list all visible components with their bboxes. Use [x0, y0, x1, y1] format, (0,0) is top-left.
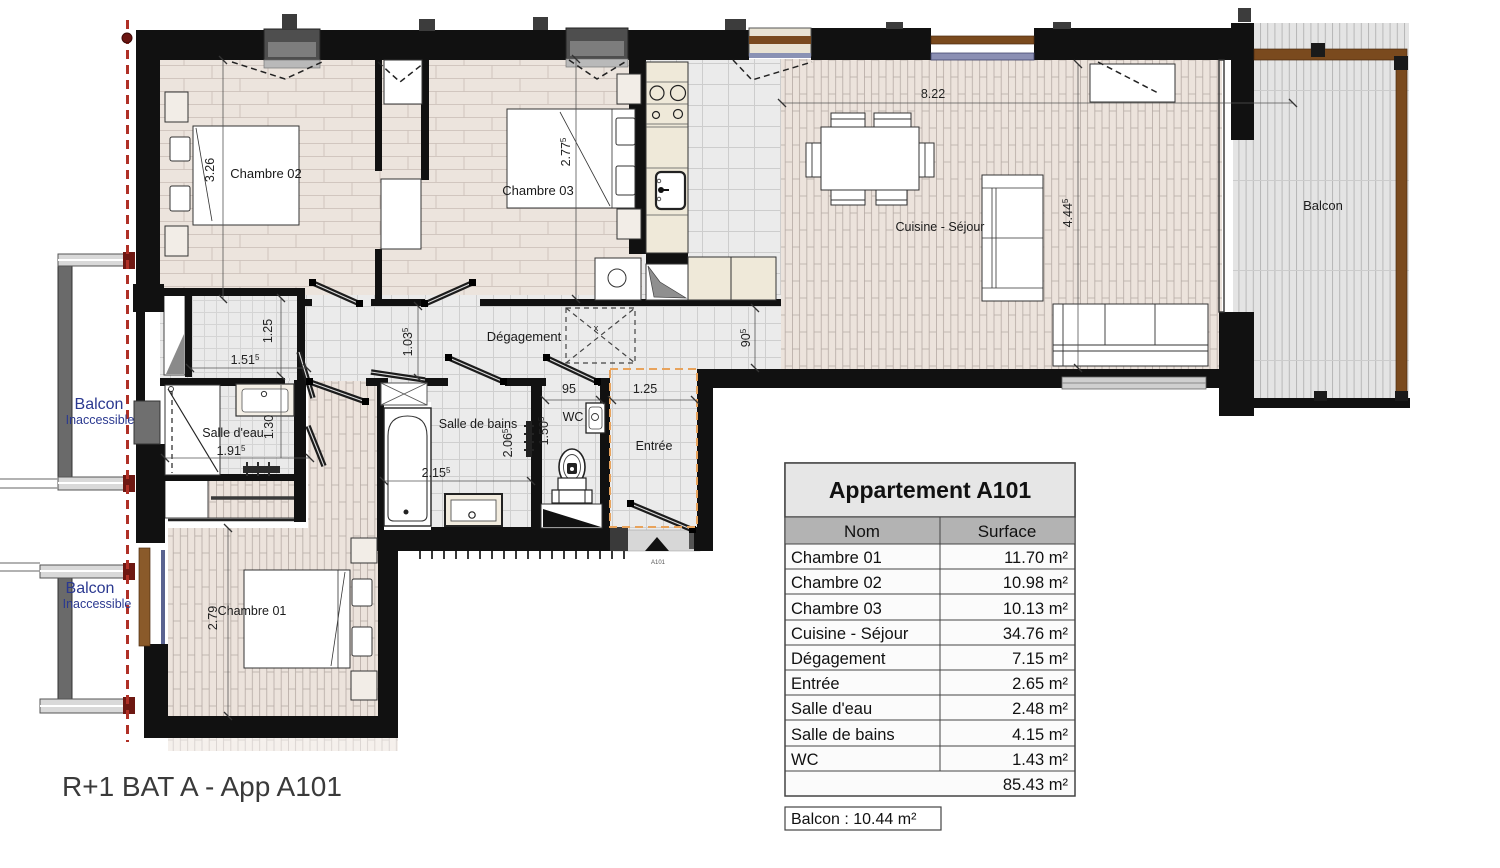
svg-text:Balcon: Balcon [1303, 198, 1343, 213]
svg-text:11.70 m²: 11.70 m² [1004, 549, 1068, 567]
svg-text:Chambre 01: Chambre 01 [791, 549, 882, 567]
svg-text:10.13 m²: 10.13 m² [1003, 600, 1069, 618]
svg-text:Chambre 02: Chambre 02 [791, 574, 882, 592]
svg-text:Salle de bains: Salle de bains [439, 417, 518, 431]
svg-text:Dégagement: Dégagement [487, 329, 562, 344]
svg-text:2.65 m²: 2.65 m² [1012, 675, 1068, 693]
svg-text:Inaccessible: Inaccessible [63, 597, 132, 611]
svg-text:Salle de bains: Salle de bains [791, 726, 895, 744]
svg-text:Chambre 03: Chambre 03 [502, 183, 574, 198]
svg-text:Nom: Nom [844, 522, 880, 541]
svg-text:Cuisine - Séjour: Cuisine - Séjour [896, 220, 985, 234]
svg-text:WC: WC [791, 751, 819, 769]
svg-text:8.22: 8.22 [921, 87, 945, 101]
svg-text:Salle d'eau: Salle d'eau [202, 426, 264, 440]
svg-text:Balcon : 10.44 m²: Balcon : 10.44 m² [791, 811, 917, 828]
svg-text:Appartement A101: Appartement A101 [829, 477, 1032, 503]
svg-text:R+1 BAT A - App A101: R+1 BAT A - App A101 [62, 771, 342, 802]
svg-text:Chambre 02: Chambre 02 [230, 166, 302, 181]
svg-text:1.43 m²: 1.43 m² [1012, 751, 1068, 769]
svg-text:Surface: Surface [978, 522, 1037, 541]
svg-text:Cuisine - Séjour: Cuisine - Séjour [791, 625, 909, 643]
svg-text:1.25: 1.25 [261, 319, 275, 343]
svg-text:10.98 m²: 10.98 m² [1003, 574, 1069, 592]
svg-text:WC: WC [563, 410, 584, 424]
svg-text:Balcon: Balcon [75, 396, 124, 413]
svg-text:1.30: 1.30 [262, 415, 276, 439]
svg-text:x: x [594, 323, 599, 333]
svg-text:Dégagement: Dégagement [791, 650, 886, 668]
svg-text:2.48 m²: 2.48 m² [1012, 700, 1068, 718]
svg-text:Entrée: Entrée [791, 675, 840, 693]
svg-text:Salle d'eau: Salle d'eau [791, 700, 872, 718]
svg-text:34.76 m²: 34.76 m² [1003, 625, 1069, 643]
svg-text:A101: A101 [651, 560, 666, 566]
svg-text:95: 95 [562, 382, 576, 396]
svg-text:Chambre 03: Chambre 03 [791, 600, 882, 618]
svg-text:1.25: 1.25 [633, 382, 657, 396]
svg-text:Chambre 01: Chambre 01 [218, 604, 287, 618]
svg-text:7.15 m²: 7.15 m² [1012, 650, 1068, 668]
svg-text:3.26: 3.26 [203, 158, 217, 182]
svg-text:4.15 m²: 4.15 m² [1012, 726, 1068, 744]
svg-text:Balcon: Balcon [66, 580, 115, 597]
svg-text:85.43 m²: 85.43 m² [1003, 776, 1069, 794]
svg-text:Entrée: Entrée [636, 439, 673, 453]
svg-text:Inaccessible: Inaccessible [66, 413, 135, 427]
